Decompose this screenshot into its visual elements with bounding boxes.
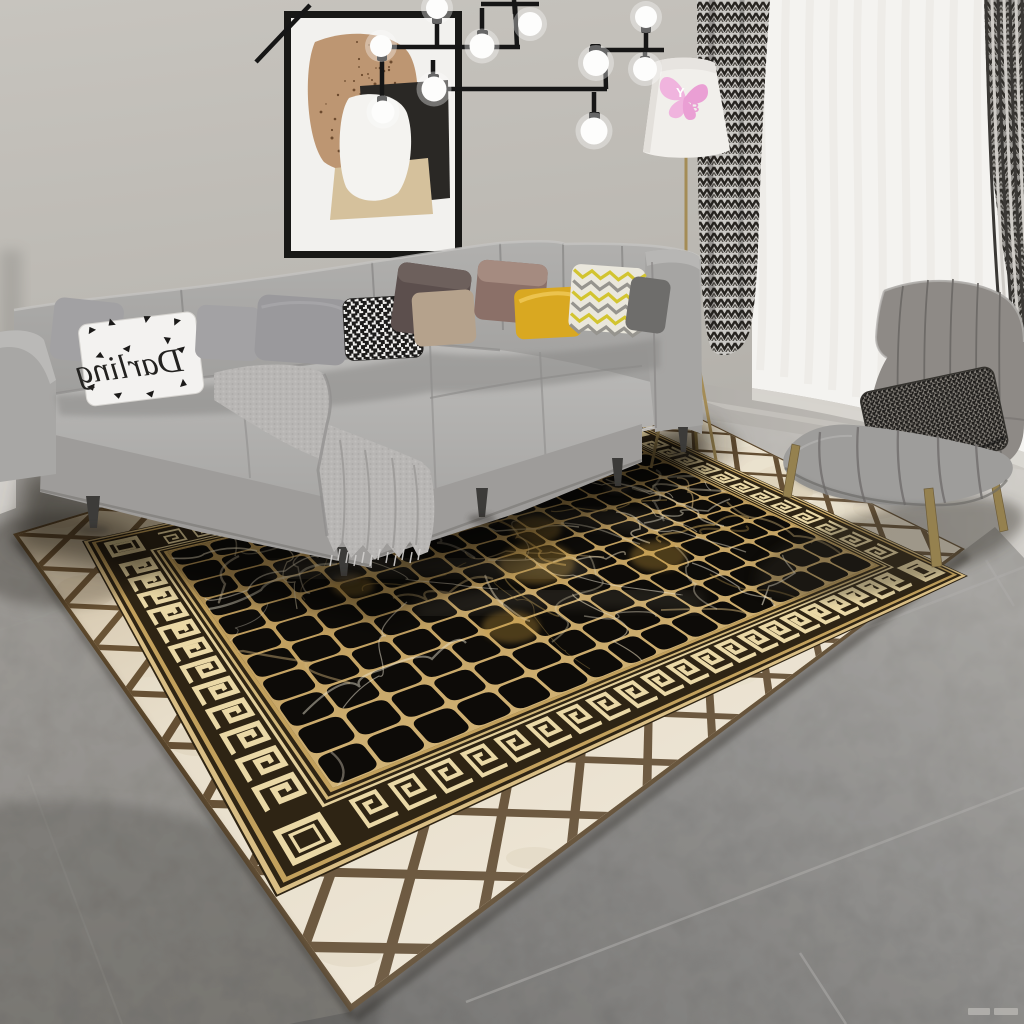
svg-text:Y: Y bbox=[676, 85, 685, 100]
svg-text:B: B bbox=[690, 100, 699, 115]
